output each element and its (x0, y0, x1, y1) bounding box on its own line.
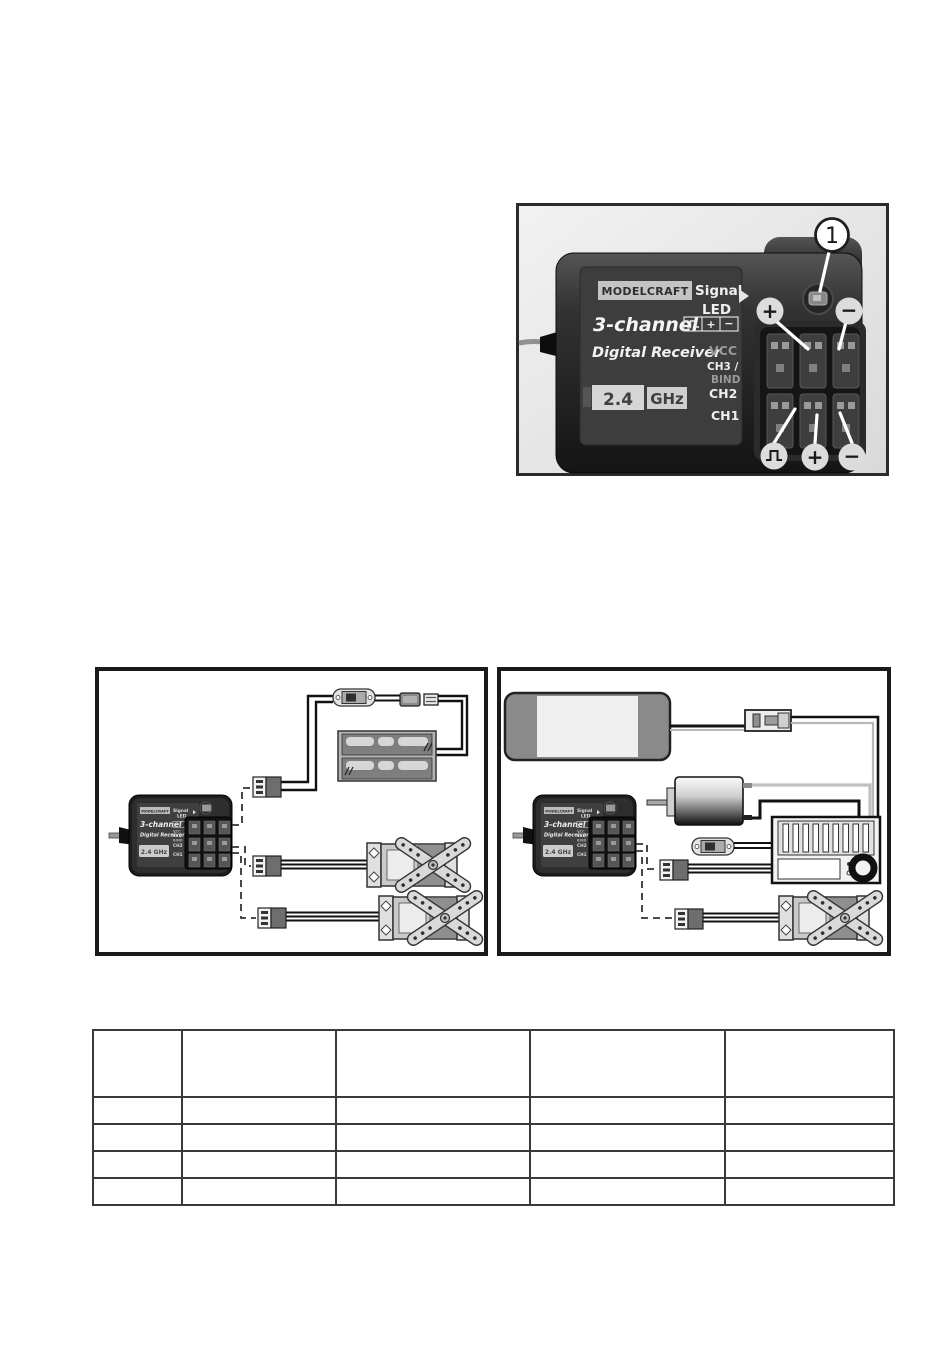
plus-icon: + (706, 318, 715, 331)
header-cell (530, 1030, 725, 1097)
receiver-photo: 2.4 MODELCRAFT Signal LED 3-channel + − … (516, 203, 889, 476)
band-sticker-partial-glyph (583, 387, 591, 407)
table-cell (336, 1097, 530, 1124)
table-cell (530, 1178, 725, 1205)
pin-label-vcc: VCC (709, 343, 737, 358)
led-label: LED (702, 302, 731, 318)
spec-table (92, 1029, 895, 1206)
steering-servo (779, 888, 885, 947)
receiver-photo-figure: 2.4 MODELCRAFT Signal LED 3-channel + − … (516, 203, 889, 480)
esc-plug (660, 860, 688, 880)
table-cell (182, 1124, 336, 1151)
servo1-plug (253, 856, 281, 876)
header-cell (182, 1030, 336, 1097)
table-cell (182, 1178, 336, 1205)
table-row (93, 1151, 894, 1178)
table-cell (93, 1151, 182, 1178)
motor-terminal-plus (743, 783, 752, 788)
product-label: Digital Receiver (592, 345, 722, 361)
header-cell (93, 1030, 182, 1097)
wiring-diagram-esc-setup (497, 667, 891, 960)
pin-label-ch1: CH1 (711, 408, 739, 423)
bottom-plus-label: + (807, 445, 824, 469)
table-row (93, 1178, 894, 1205)
esc-heatsink-fins (783, 824, 869, 852)
band-number: 2.4 (603, 390, 633, 410)
brand-logo: MODELCRAFT (601, 285, 688, 298)
band-unit: GHz (650, 390, 684, 408)
table-cell (530, 1124, 725, 1151)
table-cell (530, 1097, 725, 1124)
wiring-diagram-servo-setup (95, 667, 488, 960)
motor-terminal-minus (743, 815, 752, 820)
servo-2 (379, 888, 485, 947)
table-cell (93, 1097, 182, 1124)
table-cell (182, 1097, 336, 1124)
motor-shaft (647, 800, 669, 805)
channels-label: 3-channel (593, 314, 699, 336)
table-row (93, 1124, 894, 1151)
power-switch (692, 838, 734, 855)
bottom-minus-label: − (844, 444, 861, 468)
diagram-servo-setup (95, 667, 488, 956)
diagram-esc-setup (497, 667, 891, 956)
band-sticker: 2.4 GHz (583, 385, 687, 410)
signal-led-chip (813, 295, 821, 301)
bottom-plus-line (815, 415, 817, 443)
battery-plug (253, 777, 281, 797)
minus-icon: − (724, 317, 733, 330)
battery-pack (505, 693, 670, 760)
table-cell (725, 1124, 894, 1151)
table-cell (336, 1124, 530, 1151)
top-minus-label: − (841, 298, 858, 322)
table-cell (182, 1151, 336, 1178)
table-cell (93, 1124, 182, 1151)
bottom-pulse-circle (761, 443, 788, 470)
pin-label-ch3: CH3 / (707, 361, 738, 373)
table-cell (336, 1151, 530, 1178)
battery-box (338, 731, 436, 781)
signal-label: Signal (695, 283, 742, 299)
table-cell (530, 1151, 725, 1178)
header-cell (336, 1030, 530, 1097)
table-row (93, 1097, 894, 1124)
servo-plug (675, 909, 703, 929)
servo-1 (367, 835, 473, 894)
pin-label-bind: BIND (711, 374, 741, 386)
header-cell (725, 1030, 894, 1097)
power-switch (333, 689, 375, 706)
esc (772, 817, 880, 883)
motor-body (675, 777, 743, 825)
table-cell (725, 1178, 894, 1205)
table-cell (336, 1178, 530, 1205)
table-header-row (93, 1030, 894, 1097)
battery-pack-label (537, 696, 638, 757)
callout-1-number: 1 (825, 224, 839, 249)
top-plus-label: + (762, 299, 779, 323)
esc-label (778, 859, 840, 879)
table-cell (93, 1178, 182, 1205)
manual-page: 2.4 MODELCRAFT Signal LED 3-channel + − … (0, 0, 950, 1364)
table-cell (725, 1097, 894, 1124)
servo2-plug (258, 908, 286, 928)
battery-connector (745, 710, 791, 731)
pin-label-ch2: CH2 (709, 386, 737, 401)
table-cell (725, 1151, 894, 1178)
